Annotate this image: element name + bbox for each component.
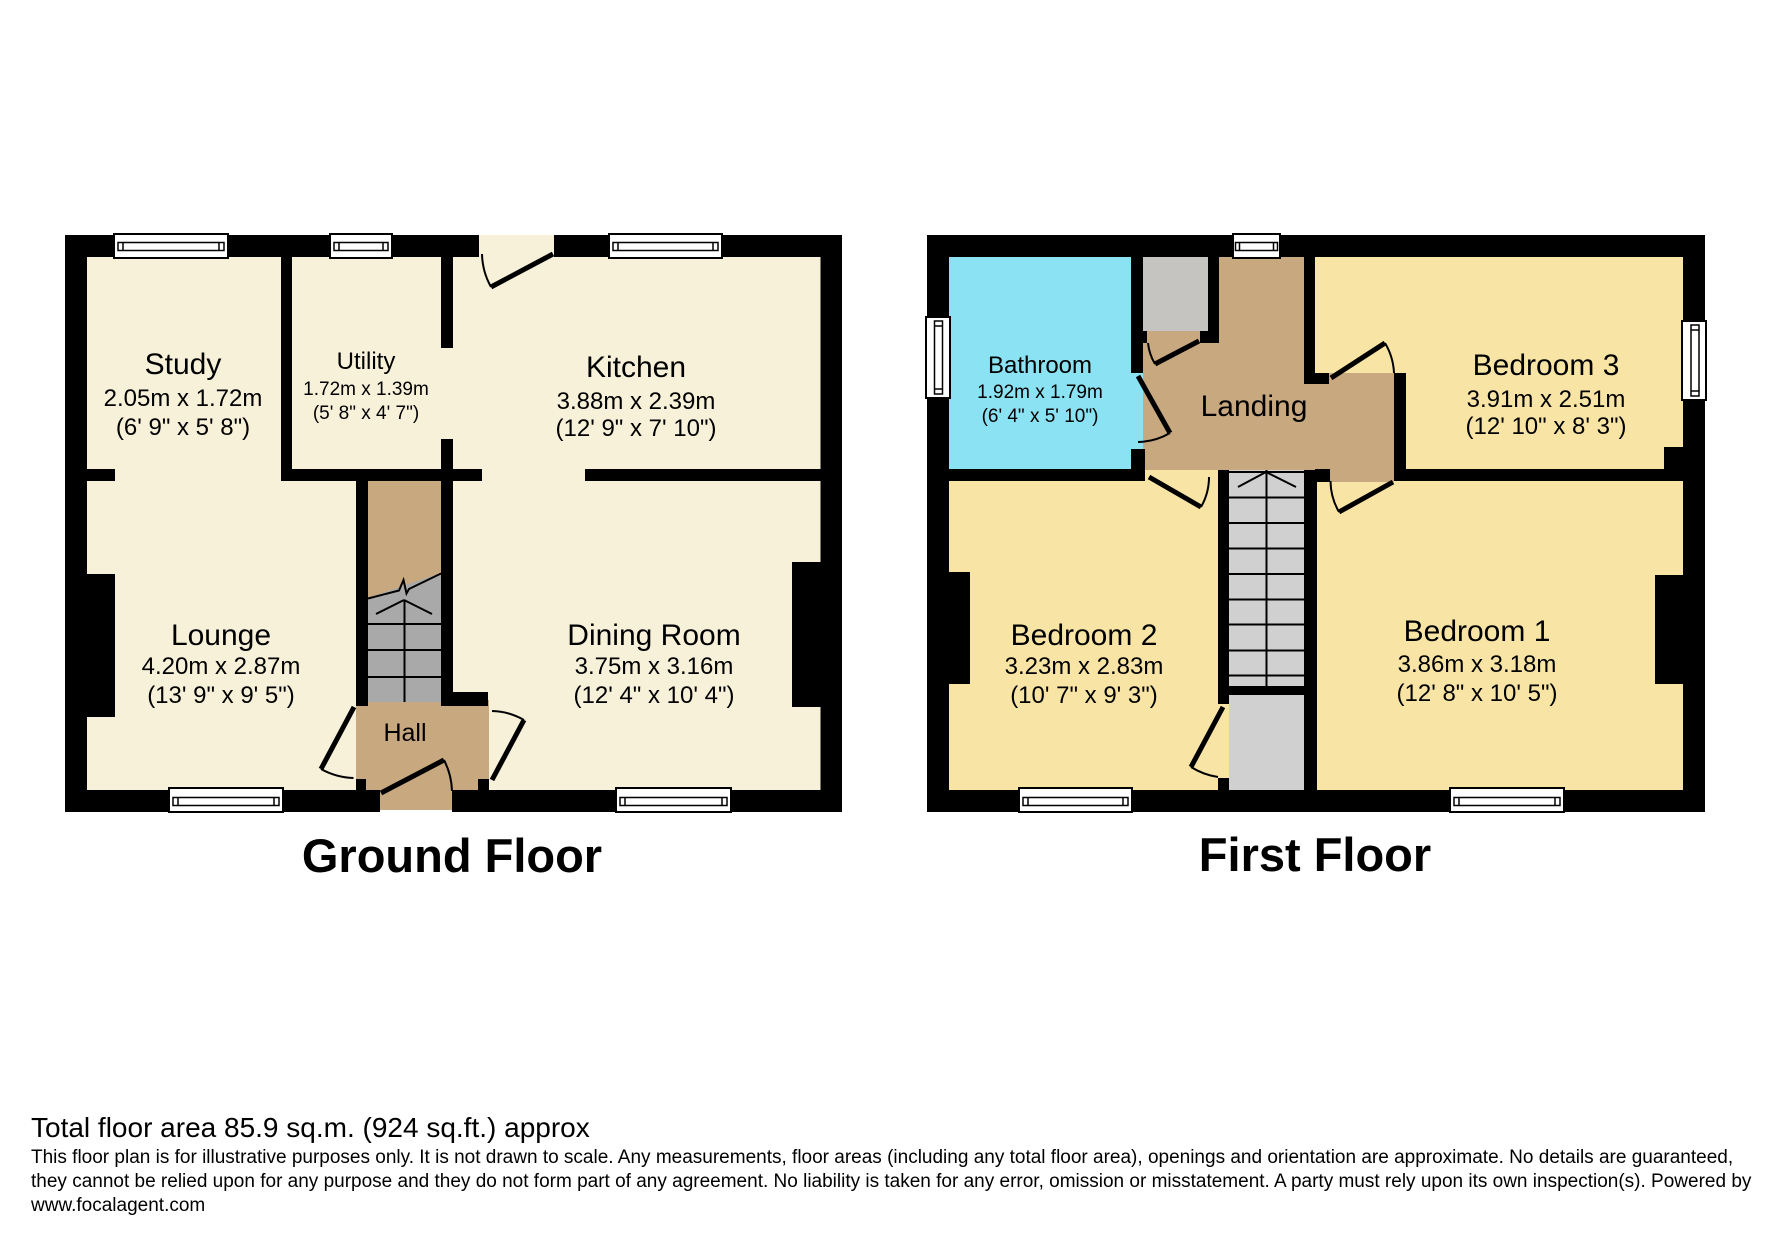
svg-text:1.92m x 1.79m: 1.92m x 1.79m: [977, 382, 1103, 403]
svg-text:Lounge: Lounge: [171, 619, 271, 652]
svg-text:Bathroom: Bathroom: [988, 352, 1092, 379]
svg-text:they cannot be relied upon for: they cannot be relied upon for any purpo…: [31, 1171, 1752, 1192]
svg-text:(6' 4" x 5' 10"): (6' 4" x 5' 10"): [982, 406, 1099, 427]
svg-text:Utility: Utility: [337, 348, 396, 375]
svg-text:3.91m x 2.51m: 3.91m x 2.51m: [1467, 386, 1626, 413]
svg-text:1.72m x 1.39m: 1.72m x 1.39m: [303, 379, 429, 400]
svg-text:3.75m x 3.16m: 3.75m x 3.16m: [575, 653, 734, 680]
svg-text:Bedroom 2: Bedroom 2: [1011, 619, 1158, 652]
svg-text:www.focalagent.com: www.focalagent.com: [30, 1195, 205, 1216]
svg-text:Dining Room: Dining Room: [567, 619, 740, 652]
svg-text:Kitchen: Kitchen: [586, 351, 686, 384]
svg-text:First Floor: First Floor: [1199, 828, 1431, 881]
svg-text:Total floor area 85.9 sq.m. (9: Total floor area 85.9 sq.m. (924 sq.ft.)…: [31, 1112, 590, 1143]
svg-text:Study: Study: [145, 348, 222, 381]
svg-text:Hall: Hall: [383, 719, 426, 747]
svg-text:2.05m x 1.72m: 2.05m x 1.72m: [104, 385, 263, 412]
svg-text:Bedroom 3: Bedroom 3: [1473, 349, 1620, 382]
svg-text:(12' 4" x 10' 4"): (12' 4" x 10' 4"): [574, 682, 735, 709]
svg-text:(12' 9" x 7' 10"): (12' 9" x 7' 10"): [556, 415, 717, 442]
svg-text:3.23m x 2.83m: 3.23m x 2.83m: [1005, 653, 1164, 680]
svg-text:Ground Floor: Ground Floor: [302, 829, 602, 882]
svg-text:(12' 8" x 10' 5"): (12' 8" x 10' 5"): [1397, 680, 1558, 707]
svg-text:4.20m x 2.87m: 4.20m x 2.87m: [142, 653, 301, 680]
svg-text:3.88m x 2.39m: 3.88m x 2.39m: [557, 388, 716, 415]
svg-text:(12' 10" x 8' 3"): (12' 10" x 8' 3"): [1466, 413, 1627, 440]
svg-text:(10' 7" x 9' 3"): (10' 7" x 9' 3"): [1010, 682, 1158, 709]
svg-text:This floor plan is for illustr: This floor plan is for illustrative purp…: [31, 1147, 1733, 1168]
svg-text:Landing: Landing: [1201, 390, 1308, 423]
svg-text:(5' 8" x 4' 7"): (5' 8" x 4' 7"): [313, 403, 419, 424]
svg-text:3.86m x 3.18m: 3.86m x 3.18m: [1398, 651, 1557, 678]
svg-text:Bedroom 1: Bedroom 1: [1404, 615, 1551, 648]
svg-text:(13' 9" x 9' 5"): (13' 9" x 9' 5"): [147, 682, 295, 709]
svg-text:(6' 9" x 5' 8"): (6' 9" x 5' 8"): [116, 414, 250, 441]
